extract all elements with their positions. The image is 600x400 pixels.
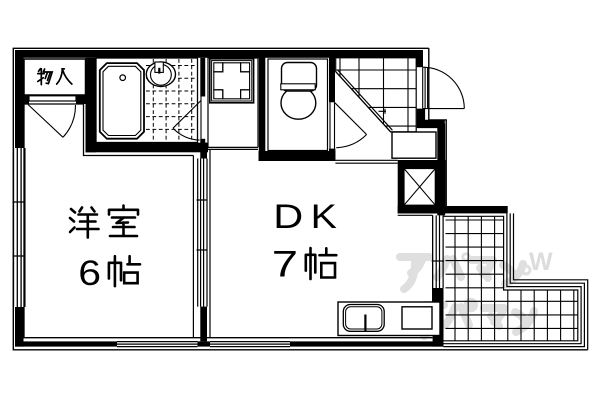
svg-text:7: 7: [272, 243, 298, 284]
svg-text:6: 6: [78, 255, 101, 294]
svg-text:K: K: [311, 197, 338, 235]
svg-text:W: W: [529, 248, 553, 276]
svg-text:D: D: [273, 198, 303, 236]
